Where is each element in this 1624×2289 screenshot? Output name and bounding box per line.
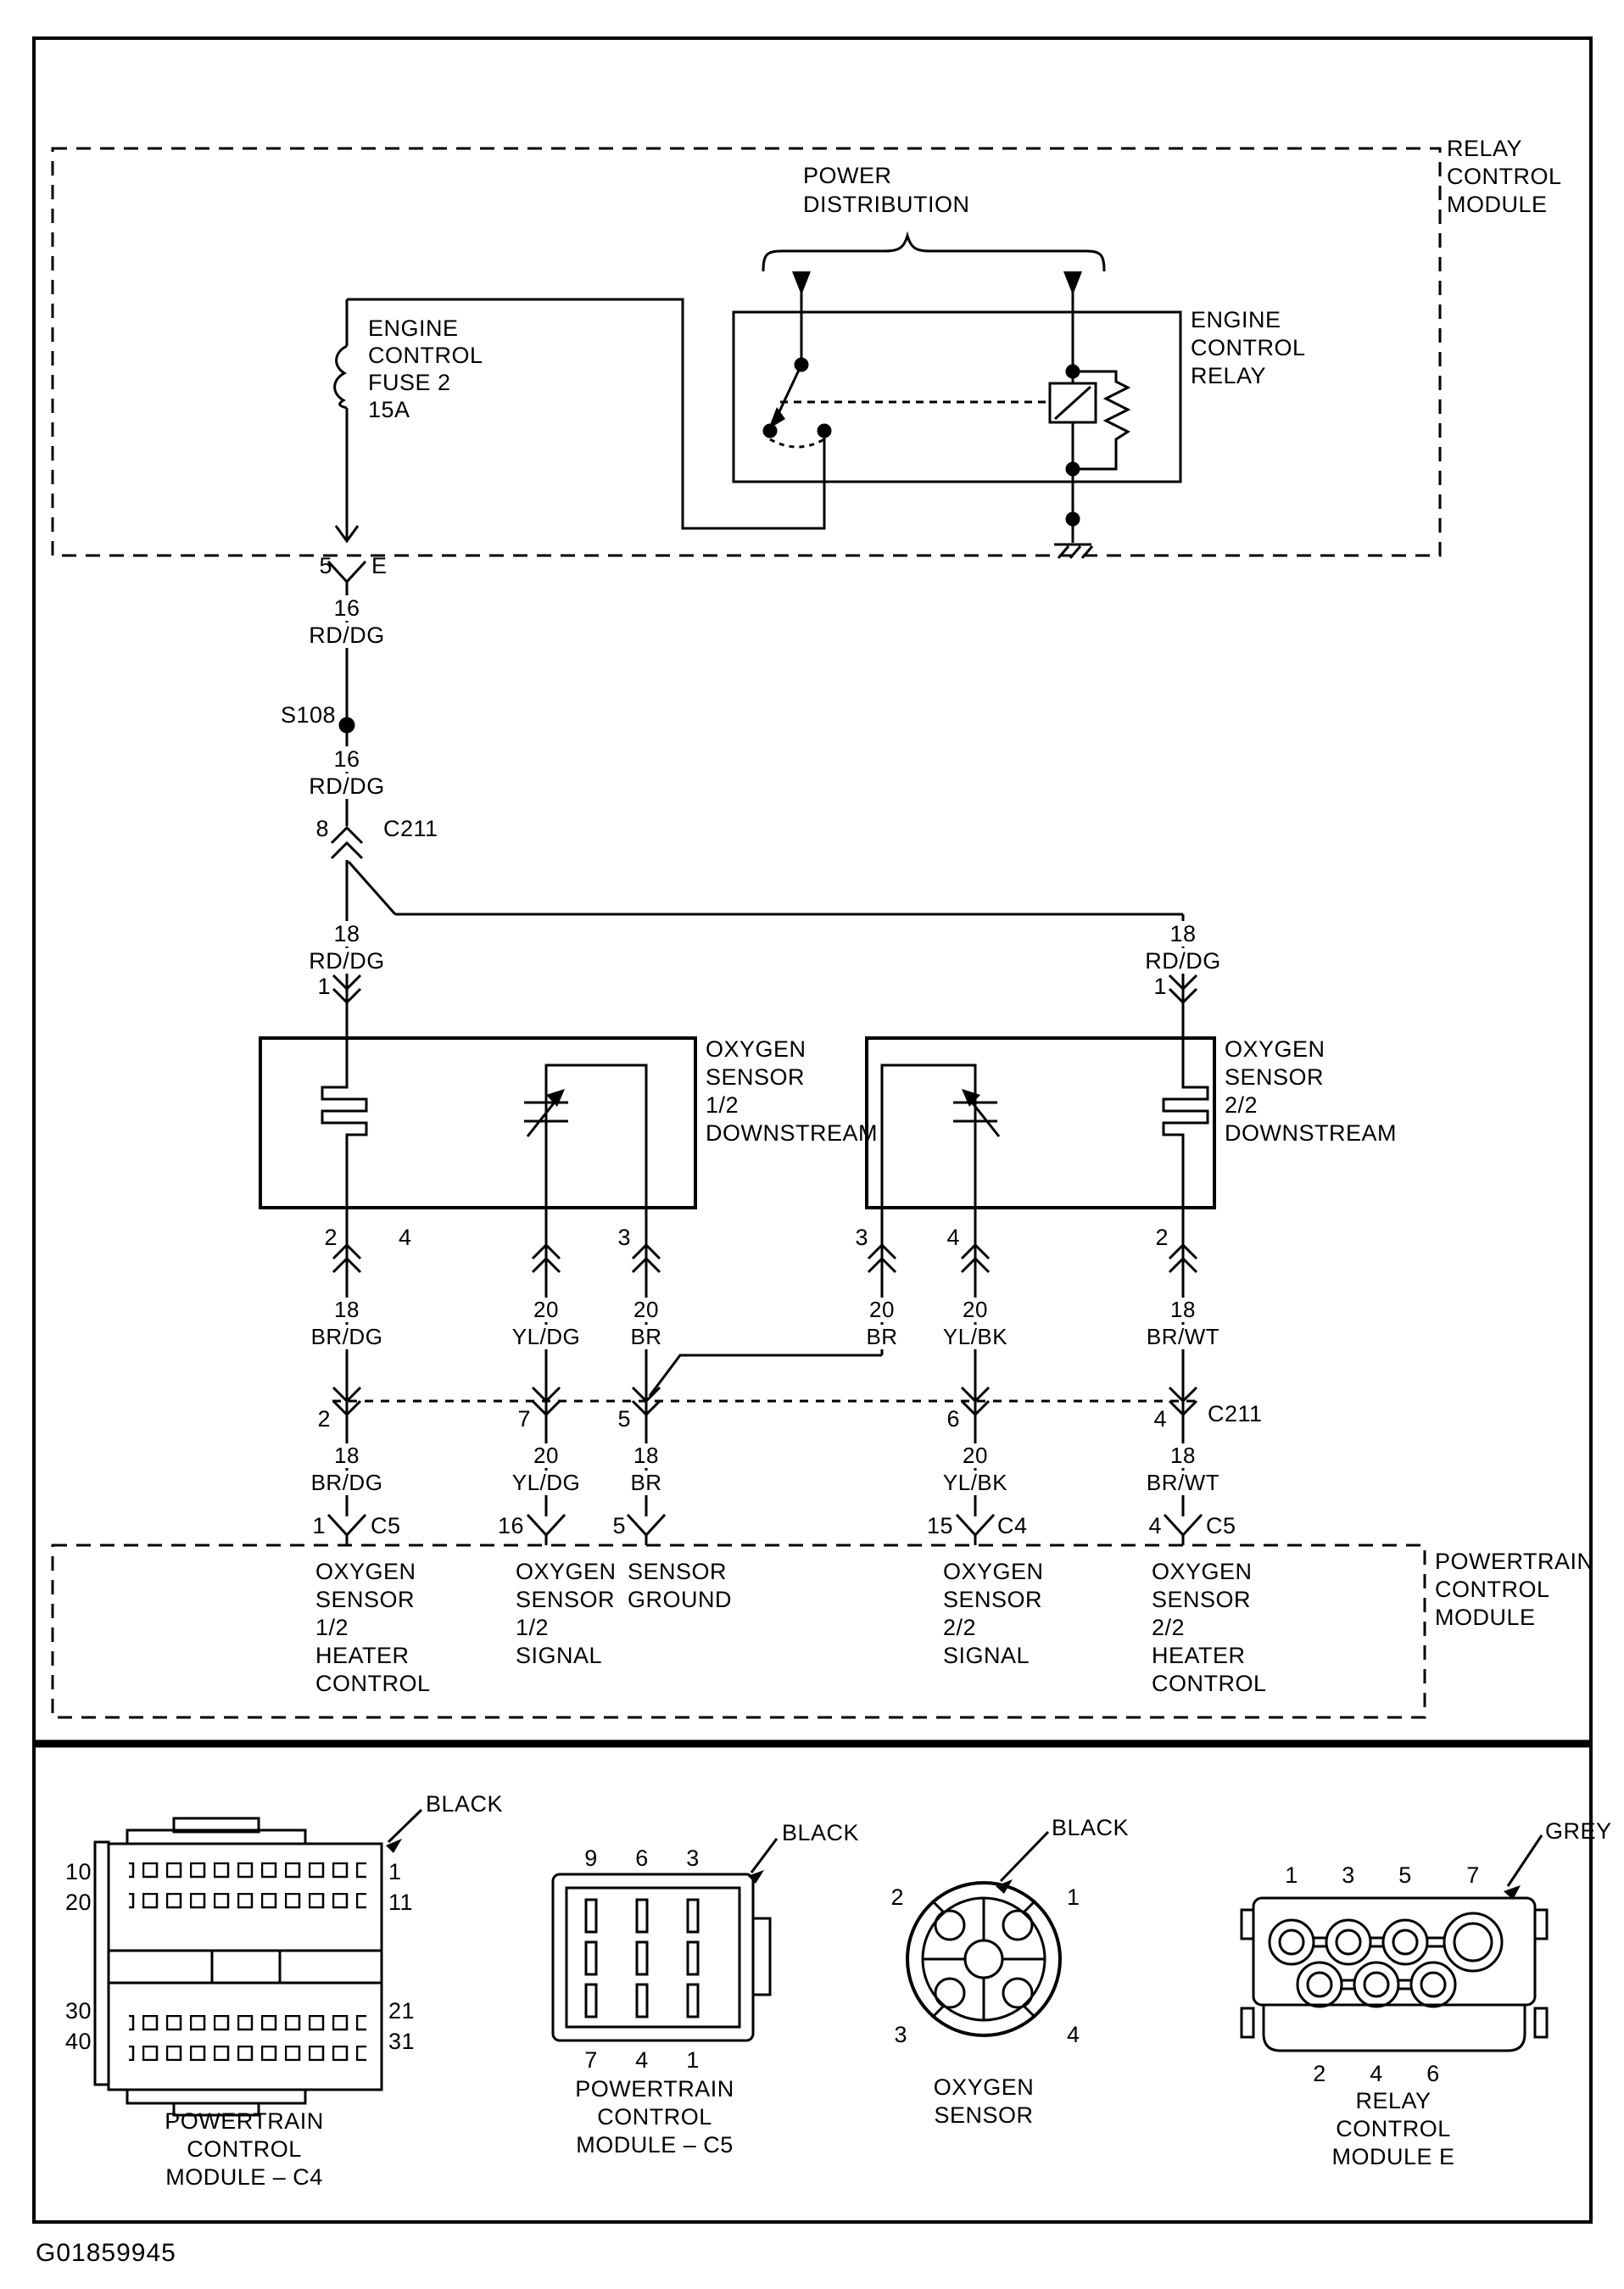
pin-number: 1	[317, 974, 331, 999]
wire-color: BR/WT	[1144, 1471, 1222, 1495]
pin-number: 11	[388, 1890, 413, 1915]
pin-number: 20	[65, 1890, 92, 1915]
pcm-function-label: OXYGEN	[1152, 1559, 1253, 1584]
pin-number: 4	[1153, 1406, 1167, 1432]
pin-number: 2	[890, 1884, 904, 1910]
connector-caption: MODULE – C5	[576, 2132, 734, 2158]
pin-number: 4	[1148, 1513, 1162, 1538]
pin-number: 5	[319, 553, 332, 578]
pin-number: 1	[388, 1859, 402, 1884]
pin-number: 6	[946, 1406, 960, 1432]
pin-number: 4	[1067, 2022, 1080, 2047]
rcm-title-line: RELAY	[1447, 136, 1522, 161]
wire-color: RD/DG	[306, 773, 388, 799]
connector-color-label: BLACK	[1052, 1815, 1129, 1840]
wire-color: YL/BK	[940, 1325, 1010, 1349]
pin-number: 3	[617, 1225, 631, 1250]
oxygen-sensor-connector	[907, 1832, 1060, 2035]
pin-number: 7	[1466, 1862, 1480, 1888]
connector-caption: CONTROL	[1336, 2116, 1451, 2141]
connector-id: C4	[997, 1513, 1028, 1538]
pin-number: 7	[584, 2047, 598, 2073]
connector-id: C211	[1208, 1401, 1263, 1426]
wire-gauge: 20	[631, 1298, 661, 1322]
engine-control-relay-label: ENGINE	[1191, 307, 1281, 332]
wire-gauge: 18	[1168, 1443, 1198, 1468]
power-distribution-label: DISTRIBUTION	[803, 192, 970, 217]
connector-caption: MODULE – C4	[165, 2164, 323, 2190]
pin-number: 4	[1370, 2061, 1383, 2086]
pcm-title-line: MODULE	[1435, 1605, 1536, 1630]
wire-gauge: 20	[960, 1443, 991, 1468]
wire-color: RD/DG	[1142, 948, 1224, 974]
pcm-function-label: GROUND	[628, 1587, 732, 1612]
pin-number: 21	[388, 1998, 415, 2024]
wire-color: RD/DG	[306, 622, 388, 648]
pin-number: 40	[65, 2029, 92, 2054]
connector-color-label: GREY	[1545, 1818, 1612, 1844]
wire-color: YL/BK	[940, 1471, 1010, 1495]
connector-caption: CONTROL	[187, 2136, 302, 2162]
pcm-function-label: 2/2	[943, 1615, 976, 1640]
wire-color: YL/DG	[510, 1471, 583, 1495]
pin-number: 5	[612, 1513, 626, 1538]
sensor-22-label: OXYGEN	[1225, 1036, 1325, 1062]
connector-id: C5	[1206, 1513, 1236, 1538]
rcm-title-line: CONTROL	[1447, 164, 1562, 189]
sensor-12-label: OXYGEN	[706, 1036, 806, 1062]
wire-color: BR	[628, 1325, 664, 1349]
wire-color: BR	[863, 1325, 900, 1349]
wire-gauge: 18	[1168, 1298, 1198, 1322]
wire-gauge: 18	[332, 1443, 362, 1468]
pcm-pin-forks	[328, 1515, 1202, 1545]
connector-color-label: BLACK	[426, 1791, 503, 1817]
connector-color-label: BLACK	[782, 1820, 859, 1845]
wiring-diagram-page: RELAY CONTROL MODULE POWER DISTRIBUTION …	[0, 0, 1624, 2289]
pcm-function-label: HEATER	[1152, 1643, 1246, 1668]
pin-number: 30	[65, 1998, 92, 2024]
wire-gauge: 18	[1167, 921, 1198, 946]
connector-id: C211	[383, 816, 438, 841]
wire-gauge: 18	[331, 921, 362, 946]
sensor-22-label: 2/2	[1225, 1092, 1258, 1118]
pin-number: 7	[517, 1406, 531, 1432]
connector-caption: CONTROL	[597, 2104, 712, 2130]
pcm-function-label: SENSOR	[516, 1587, 615, 1612]
fuse-label: CONTROL	[368, 343, 483, 368]
engine-control-relay-label: RELAY	[1191, 363, 1266, 388]
connector-caption: OXYGEN	[934, 2074, 1035, 2100]
connector-caption: RELAY	[1355, 2088, 1431, 2113]
figure-id: G01859945	[36, 2239, 176, 2268]
power-distribution-feeds	[763, 236, 1104, 371]
pcm-title-line: CONTROL	[1435, 1577, 1550, 1602]
pin-number: 5	[617, 1406, 631, 1432]
pcm-function-label: 2/2	[1152, 1615, 1185, 1640]
pin-number: 3	[1342, 1862, 1355, 1888]
wire-color: BR/DG	[309, 1325, 386, 1349]
pcm-function-label: SENSOR	[315, 1587, 415, 1612]
pcm-function-label: SIGNAL	[516, 1643, 602, 1668]
fuse-label: 15A	[368, 397, 410, 422]
wire-color: YL/DG	[510, 1325, 583, 1349]
pcm-function-label: OXYGEN	[516, 1559, 617, 1584]
rcm-title-line: MODULE	[1447, 192, 1548, 217]
pin-number: 16	[498, 1513, 524, 1538]
power-distribution-label: POWER	[803, 163, 892, 188]
feed-column	[328, 561, 1197, 1038]
sensor-22-label: DOWNSTREAM	[1225, 1120, 1397, 1146]
pcm-function-label: SIGNAL	[943, 1643, 1030, 1668]
oxygen-sensor-22-box	[867, 1038, 1214, 1208]
c211-connector-icon	[332, 828, 362, 843]
sensor-12-label: DOWNSTREAM	[706, 1120, 878, 1146]
pin-number: 4	[399, 1225, 412, 1250]
pcm-function-label: HEATER	[315, 1643, 410, 1668]
pin-number: 6	[1426, 2061, 1440, 2086]
pin-number: 3	[894, 2022, 907, 2047]
pin-number: 3	[855, 1225, 868, 1250]
pcm-title-line: POWERTRAIN	[1435, 1549, 1594, 1574]
pcm-function-label: 1/2	[516, 1615, 549, 1640]
feed-arrow-icon	[1063, 271, 1082, 295]
sensor-12-label: 1/2	[706, 1092, 739, 1118]
connector-chevrons	[333, 1245, 1197, 1415]
connector-caption: MODULE E	[1331, 2144, 1454, 2169]
fuse-label: FUSE 2	[368, 370, 451, 395]
pin-number: 1	[1285, 1862, 1298, 1888]
pin-number: 10	[65, 1859, 92, 1884]
wire-gauge: 18	[631, 1443, 661, 1468]
pcm-function-label: CONTROL	[1152, 1671, 1267, 1696]
pcm-function-label: OXYGEN	[943, 1559, 1044, 1584]
pin-number: 5	[1398, 1862, 1412, 1888]
pcm-c4-connector	[95, 1810, 421, 2115]
connector-caption: SENSOR	[934, 2102, 1033, 2128]
splice-id: S108	[281, 702, 336, 728]
pin-number: 2	[1155, 1225, 1169, 1250]
sensor-22-label: SENSOR	[1225, 1064, 1324, 1090]
sensor-wires	[332, 1208, 1199, 1516]
connector-id: C5	[371, 1513, 401, 1538]
pin-number: 3	[686, 1845, 700, 1871]
pin-number: 6	[635, 1845, 649, 1871]
pin-number: 4	[635, 2047, 649, 2073]
pcm-function-label: 1/2	[315, 1615, 349, 1640]
oxygen-sensor-12-box	[260, 1038, 695, 1208]
pin-number: 8	[315, 816, 329, 841]
wire-gauge: 16	[331, 595, 362, 621]
terminal-id: E	[371, 553, 388, 578]
pointer-arrow-icon	[748, 1870, 764, 1884]
engine-control-relay-label: CONTROL	[1191, 335, 1306, 360]
wire-gauge: 20	[531, 1298, 561, 1322]
connector-caption: POWERTRAIN	[165, 2108, 324, 2134]
pin-number: 1	[1067, 1884, 1080, 1910]
fuse-icon	[335, 346, 347, 408]
pcm-function-label: SENSOR	[628, 1559, 727, 1584]
pcm-function-label: SENSOR	[1152, 1587, 1251, 1612]
pin-number: 31	[388, 2029, 415, 2054]
feed-arrow-icon	[792, 271, 811, 295]
pin-number: 2	[317, 1406, 331, 1432]
pcm-function-label: CONTROL	[315, 1671, 431, 1696]
pin-number: 2	[324, 1225, 338, 1250]
pin-number: 2	[1313, 2061, 1326, 2086]
pcm-function-label: SENSOR	[943, 1587, 1042, 1612]
pin-number: 4	[946, 1225, 960, 1250]
pin-number: 15	[927, 1513, 953, 1538]
wire-gauge: 20	[867, 1298, 897, 1322]
wire-color: BR	[628, 1471, 664, 1495]
pin-number: 1	[1153, 974, 1167, 999]
wire-gauge: 16	[331, 746, 362, 772]
wire-gauge: 20	[531, 1443, 561, 1468]
wire-color: BR/WT	[1144, 1325, 1222, 1349]
wire-color: BR/DG	[309, 1471, 386, 1495]
fuse-label: ENGINE	[368, 315, 459, 341]
pin-number: 9	[584, 1845, 598, 1871]
wire-gauge: 20	[960, 1298, 991, 1322]
wire-color: RD/DG	[306, 948, 388, 974]
connector-caption: POWERTRAIN	[575, 2076, 734, 2102]
wire-gauge: 18	[332, 1298, 362, 1322]
heater-element-icon	[322, 1038, 366, 1208]
pin-number: 1	[312, 1513, 326, 1538]
pcm-function-label: OXYGEN	[315, 1559, 416, 1584]
heater-element-icon	[1164, 1038, 1208, 1208]
sensor-12-label: SENSOR	[706, 1064, 805, 1090]
pin-number: 1	[686, 2047, 700, 2073]
